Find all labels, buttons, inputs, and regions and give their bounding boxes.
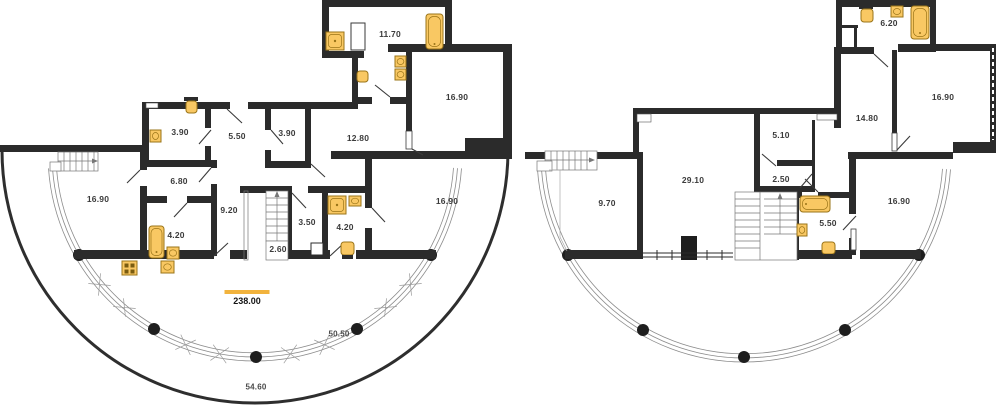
room-area-label: 29.10 [682,175,704,185]
room-area-label: 2.60 [269,244,286,254]
room-area-label: 6.20 [880,18,897,28]
terrace-outer-arc-label: 54.60 [245,383,266,392]
room-area-label: 16.90 [932,92,954,102]
room-area-label: 11.70 [379,29,401,39]
bathtub-icon [426,14,443,49]
room-area-label: 9.70 [598,198,615,208]
sink-icon [891,6,903,17]
floor-plan-canvas: 11.70 16.90 3.90 5.50 3.90 12.80 16.90 6… [0,0,1000,409]
sink-icon [167,247,179,259]
floor-plan-drawing [0,0,1000,409]
room-area-label: 2.50 [772,174,789,184]
sink-icon [395,69,406,80]
room-area-label: 3.90 [278,128,295,138]
right-floor-plan [525,0,996,363]
room-area-label: 3.90 [171,127,188,137]
total-area-accent-bar [225,290,270,294]
toilet-icon [341,242,354,259]
stairs-icon [50,152,288,260]
fixtures [797,5,929,259]
sink-icon [161,261,174,273]
room-area-label: 12.80 [347,133,369,143]
room-area-label: 14.80 [856,113,878,123]
sink-icon [150,130,161,142]
room-area-label: 5.50 [819,218,836,228]
room-area-label: 6.80 [170,176,187,186]
terrace-columns [562,249,925,363]
room-area-label: 16.90 [436,196,458,206]
room-area-label: 4.20 [167,230,184,240]
room-area-label: 3.50 [298,217,315,227]
sink-icon [395,56,406,67]
toilet-icon [353,70,368,83]
room-area-label: 4.20 [336,222,353,232]
room-area-label: 16.90 [87,194,109,204]
shower-icon [326,32,344,50]
room-area-label: 9.20 [220,205,237,215]
room-area-label: 16.90 [446,92,468,102]
window-notches [146,103,158,108]
sink-icon [797,224,807,236]
room-area-label: 5.10 [772,130,789,140]
terrace-inner-arc-label: 50.50 [328,330,349,339]
terrace-glazing-arc [49,168,462,363]
toilet-icon [184,97,198,113]
toilet-icon [859,5,873,22]
bathtub-icon [149,226,164,258]
toilet-icon [309,243,325,259]
room-area-label: 5.50 [228,131,245,141]
total-area-badge: 238.00 [233,296,261,306]
stove-icon [122,261,137,275]
window-x-marks [88,273,421,363]
bathtub-icon [911,6,929,39]
shower-icon [328,196,346,214]
sink-icon [349,196,361,206]
bathtub-icon [800,196,830,212]
room-area-label: 16.90 [888,196,910,206]
